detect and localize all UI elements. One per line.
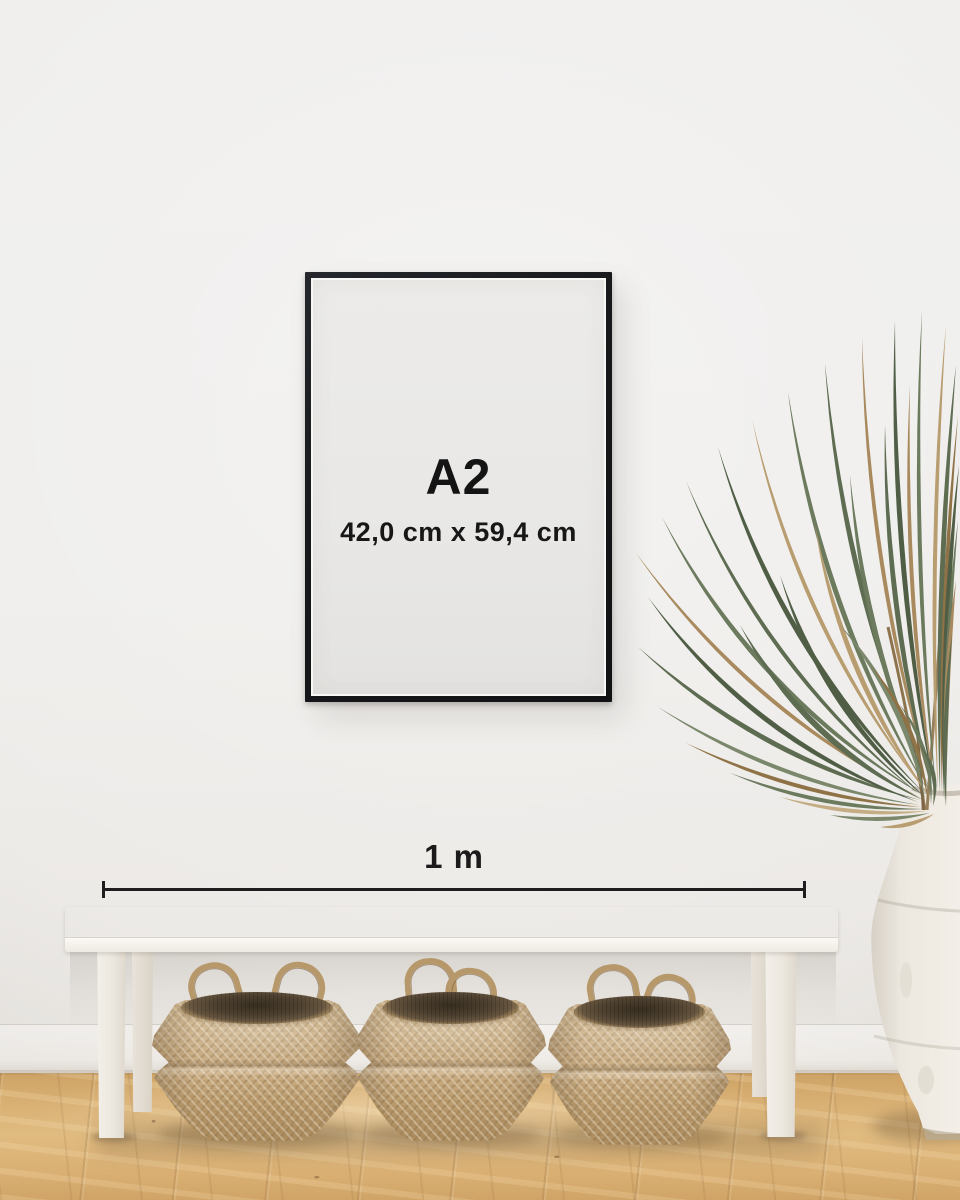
palm-plant — [590, 295, 960, 895]
bench-leg — [96, 950, 127, 1138]
poster-dimensions-label: 42,0 cm x 59,4 cm — [340, 519, 577, 546]
plant-leaves — [636, 311, 959, 828]
bench-leg — [131, 950, 154, 1112]
storage-basket — [152, 962, 362, 1142]
bench-leg — [764, 950, 798, 1137]
room-scene: A2 42,0 cm x 59,4 cm 1 m — [0, 0, 960, 1200]
poster-frame: A2 42,0 cm x 59,4 cm — [305, 272, 612, 702]
palm-frond — [658, 707, 919, 805]
basket-opening — [181, 992, 332, 1024]
bench — [65, 907, 838, 952]
poster-size-label: A2 — [426, 452, 492, 502]
storage-basket — [356, 962, 546, 1142]
poster: A2 42,0 cm x 59,4 cm — [311, 278, 606, 696]
basket-opening — [383, 992, 520, 1024]
basket-opening — [574, 996, 706, 1028]
storage-basket — [548, 966, 731, 1142]
